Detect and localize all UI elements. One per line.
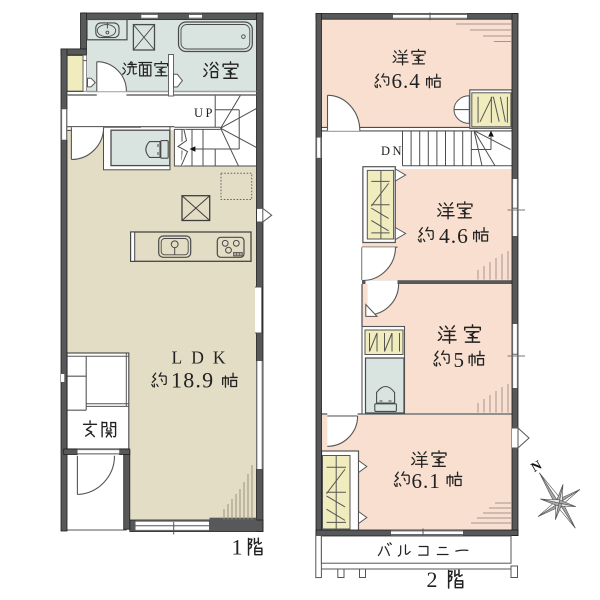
svg-text:DN: DN [381,144,404,158]
svg-text:18.9: 18.9 [171,368,214,393]
svg-text:2: 2 [427,567,438,592]
svg-text:1: 1 [232,535,243,560]
svg-text:UP: UP [194,106,215,120]
svg-text:4.6: 4.6 [439,224,469,248]
svg-text:6.4: 6.4 [392,69,421,93]
svg-text:6.1: 6.1 [412,469,441,493]
svg-text:5: 5 [454,348,465,372]
svg-text:LDK: LDK [172,348,235,368]
